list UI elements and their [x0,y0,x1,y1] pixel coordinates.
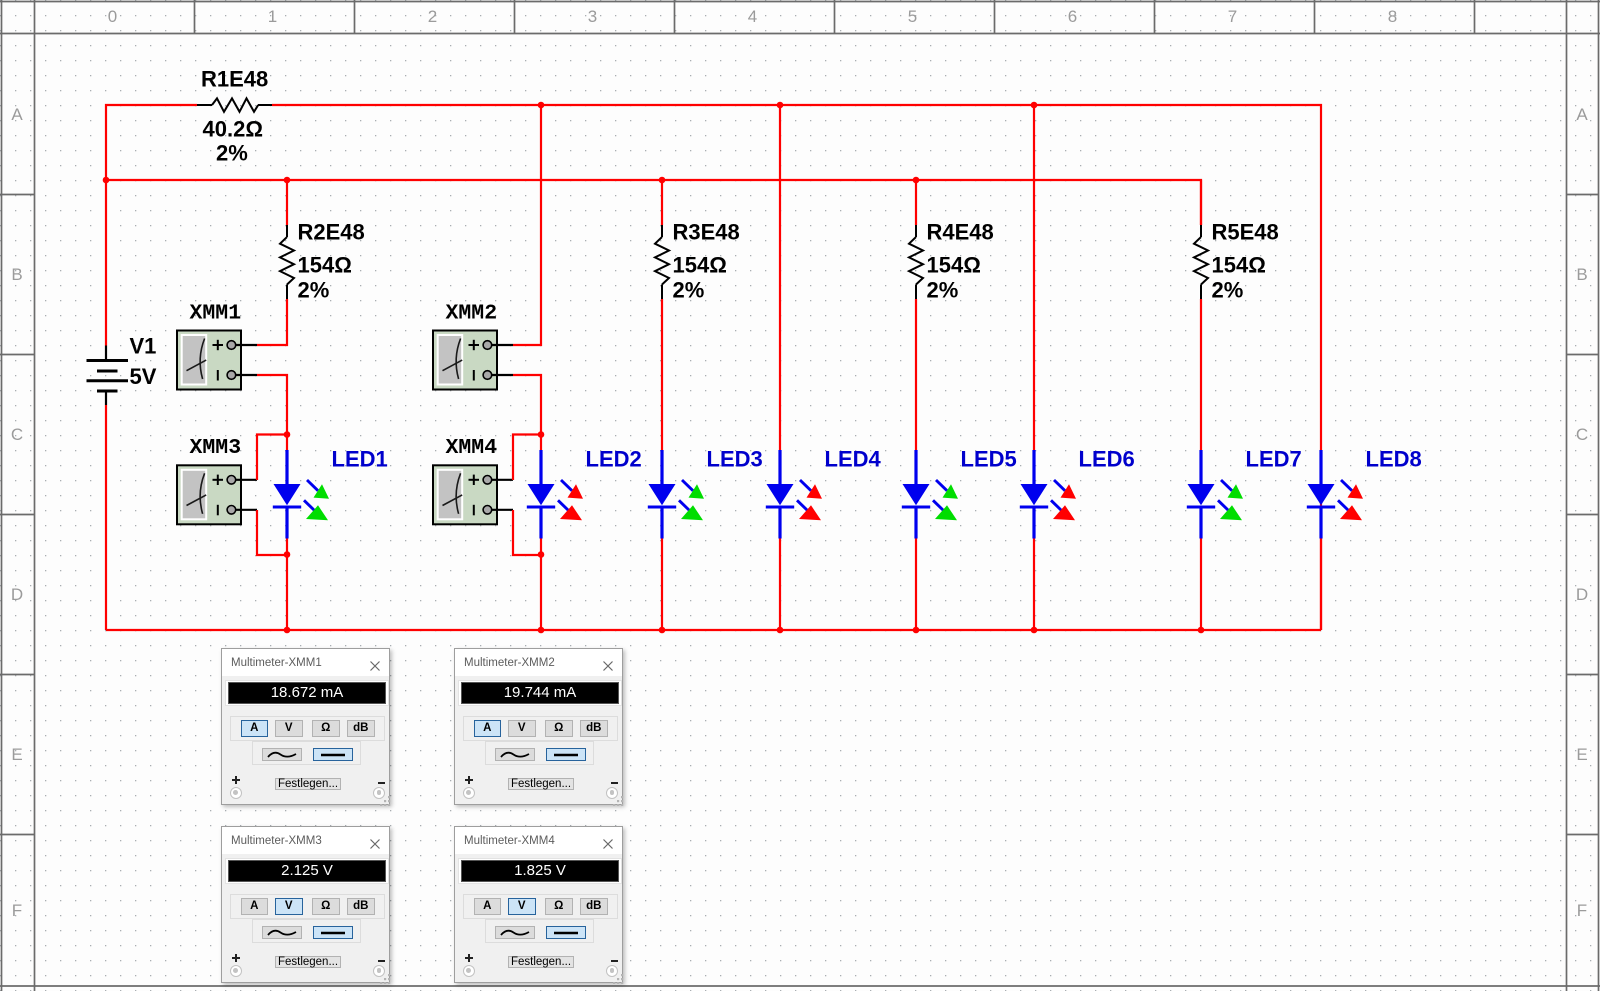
svg-text:XMM2: XMM2 [446,302,498,326]
svg-text:8: 8 [1388,7,1397,26]
svg-text:R4E48: R4E48 [927,220,994,245]
svg-text:E: E [11,745,22,764]
svg-text:D: D [1576,585,1588,604]
svg-text:V1: V1 [130,334,157,359]
svg-text:154Ω: 154Ω [673,253,727,278]
svg-text:R2E48: R2E48 [298,220,365,245]
svg-text:7: 7 [1228,7,1237,26]
svg-text:A: A [11,105,23,124]
svg-text:F: F [12,901,22,920]
svg-text:C: C [1576,425,1588,444]
svg-text:2%: 2% [298,278,330,303]
svg-text:C: C [11,425,23,444]
svg-text:6: 6 [1068,7,1077,26]
svg-text:LED1: LED1 [332,447,388,472]
svg-text:5: 5 [908,7,917,26]
svg-text:B: B [1576,265,1587,284]
svg-text:LED8: LED8 [1366,447,1422,472]
svg-text:A: A [1576,105,1588,124]
svg-text:XMM3: XMM3 [190,436,242,460]
svg-text:LED2: LED2 [586,447,642,472]
svg-text:LED4: LED4 [825,447,882,472]
svg-text:LED7: LED7 [1246,447,1302,472]
svg-text:LED5: LED5 [961,447,1017,472]
svg-text:XMM4: XMM4 [446,436,498,460]
svg-text:154Ω: 154Ω [1212,253,1266,278]
svg-text:D: D [11,585,23,604]
svg-text:40.2Ω: 40.2Ω [203,117,263,142]
svg-text:2%: 2% [927,278,959,303]
svg-text:0: 0 [108,7,117,26]
svg-text:LED3: LED3 [707,447,763,472]
svg-text:E: E [1576,745,1587,764]
svg-text:R3E48: R3E48 [673,220,740,245]
svg-text:4: 4 [748,7,757,26]
svg-text:154Ω: 154Ω [298,253,352,278]
svg-text:2%: 2% [216,141,248,166]
svg-text:154Ω: 154Ω [927,253,981,278]
svg-text:3: 3 [588,7,597,26]
svg-text:B: B [11,265,22,284]
svg-text:5V: 5V [130,364,157,389]
svg-text:2: 2 [428,7,437,26]
svg-text:1: 1 [268,7,277,26]
svg-text:LED6: LED6 [1079,447,1135,472]
svg-text:F: F [1577,901,1587,920]
svg-text:2%: 2% [1212,278,1244,303]
svg-text:R1E48: R1E48 [201,67,268,92]
svg-text:XMM1: XMM1 [190,302,242,326]
svg-text:R5E48: R5E48 [1212,220,1279,245]
svg-text:2%: 2% [673,278,705,303]
